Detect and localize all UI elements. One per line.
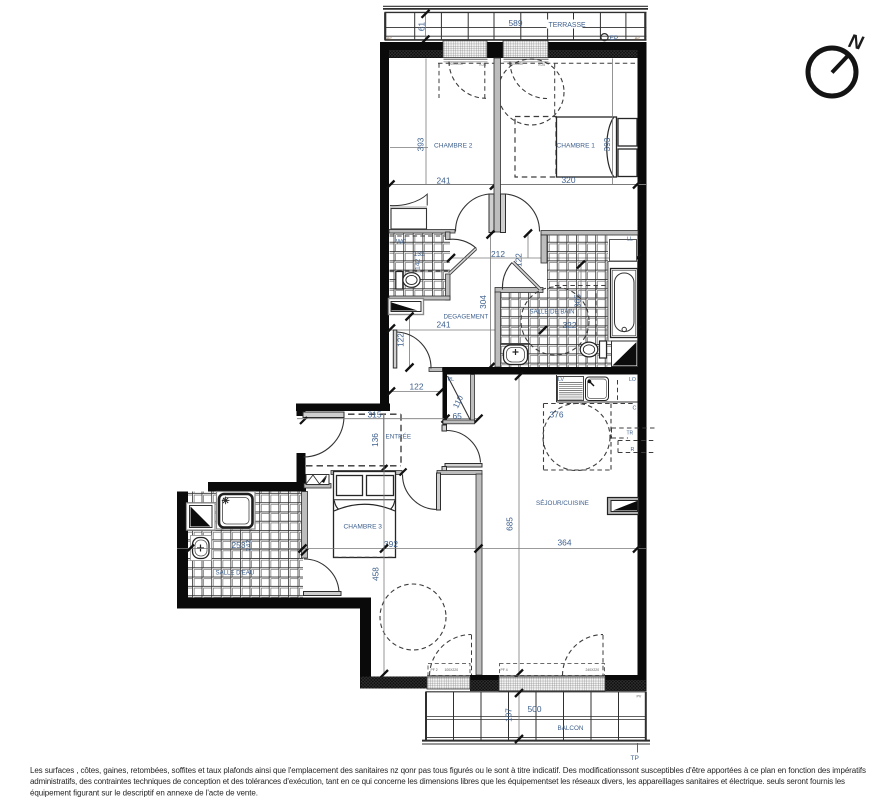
svg-text:TR: TR — [627, 431, 634, 437]
svg-text:équipement figurant sur le des: équipement figurant sur le descriptif en… — [30, 788, 258, 797]
svg-text:Ad: Ad — [386, 36, 393, 41]
svg-text:212: 212 — [491, 249, 505, 259]
svg-text:240X220: 240X220 — [586, 668, 600, 672]
svg-text:320: 320 — [562, 175, 576, 185]
svg-text:C: C — [633, 406, 637, 412]
svg-text:364: 364 — [558, 538, 572, 548]
svg-text:PF 2: PF 2 — [431, 668, 438, 672]
svg-text:PL: PL — [448, 377, 455, 383]
svg-text:EP: EP — [610, 35, 619, 42]
svg-text:Ad: Ad — [634, 36, 641, 41]
svg-text:376: 376 — [550, 410, 564, 420]
svg-text:132: 132 — [414, 251, 426, 258]
svg-text:65: 65 — [453, 411, 463, 421]
svg-text:TP: TP — [631, 755, 640, 762]
svg-text:393: 393 — [417, 137, 426, 151]
svg-text:SALLE DE BAIN: SALLE DE BAIN — [530, 309, 575, 316]
svg-text:589: 589 — [509, 18, 523, 28]
svg-text:61: 61 — [418, 22, 427, 32]
svg-text:122: 122 — [397, 333, 406, 347]
svg-text:136: 136 — [371, 433, 380, 447]
svg-text:PV: PV — [637, 695, 642, 699]
svg-text:WC: WC — [396, 239, 407, 246]
svg-text:BALCON: BALCON — [558, 725, 584, 732]
svg-text:458: 458 — [372, 567, 381, 581]
svg-text:107: 107 — [505, 708, 514, 722]
svg-text:393: 393 — [603, 137, 612, 151]
svg-text:241: 241 — [437, 176, 451, 186]
svg-text:242: 242 — [246, 540, 253, 552]
svg-text:LV: LV — [558, 377, 564, 383]
svg-text:685: 685 — [506, 517, 515, 531]
svg-text:304: 304 — [479, 295, 488, 309]
svg-text:CHAMBRE 1: CHAMBRE 1 — [557, 143, 596, 150]
svg-text:100X205i: 100X205i — [449, 62, 463, 66]
svg-text:122: 122 — [410, 382, 424, 392]
svg-text:100X220: 100X220 — [445, 668, 459, 672]
svg-text:Les surfaces , côtes, gaines,: Les surfaces , côtes, gaines, retombées,… — [30, 766, 866, 775]
svg-text:315: 315 — [368, 410, 382, 420]
svg-text:500: 500 — [528, 704, 542, 714]
svg-text:CHAMBRE 2: CHAMBRE 2 — [434, 143, 473, 150]
svg-text:R: R — [631, 447, 635, 453]
svg-text:LO: LO — [629, 377, 636, 383]
svg-text:PF 4: PF 4 — [501, 668, 508, 672]
svg-text:LL: LL — [627, 237, 633, 243]
svg-text:administratifs, des contrainte: administratifs, des contraintes techniqu… — [30, 777, 845, 786]
svg-text:322: 322 — [563, 320, 577, 330]
svg-text:CHAMBRE 3: CHAMBRE 3 — [344, 524, 383, 531]
svg-text:SALLE D'EAU: SALLE D'EAU — [216, 570, 255, 577]
svg-text:241: 241 — [437, 320, 451, 330]
svg-text:142: 142 — [415, 258, 422, 270]
svg-text:SÉJOUR/CUISINE: SÉJOUR/CUISINE — [536, 498, 589, 507]
svg-text:TERRASSE: TERRASSE — [549, 22, 587, 29]
svg-text:ENTRÉE: ENTRÉE — [386, 432, 412, 441]
